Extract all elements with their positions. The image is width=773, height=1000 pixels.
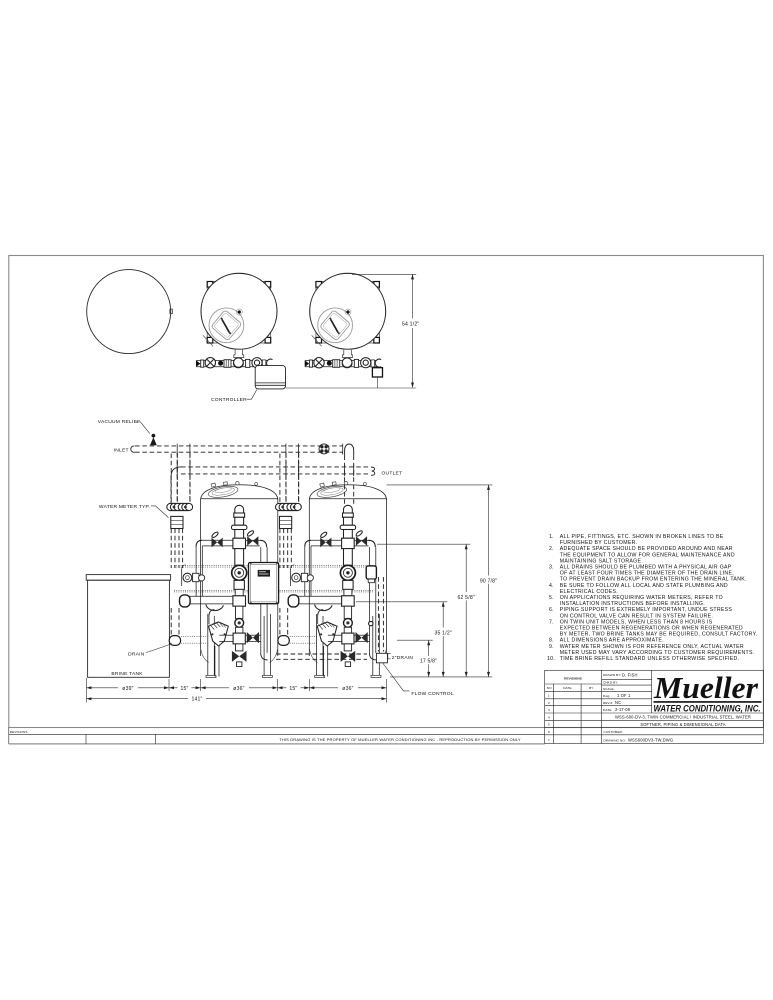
svg-text:BY METER, TWO BRINE TANKS MAY: BY METER, TWO BRINE TANKS MAY BE REQUIRE…: [560, 632, 758, 638]
svg-text:FURNISHED BY CUSTOMER.: FURNISHED BY CUSTOMER.: [560, 540, 638, 546]
svg-text:MAINTAINING SALT STORAGE.: MAINTAINING SALT STORAGE.: [560, 558, 643, 564]
svg-text:1 OF 1: 1 OF 1: [617, 693, 631, 698]
svg-text:5.: 5.: [549, 595, 554, 601]
svg-text:Mueller: Mueller: [653, 670, 759, 705]
svg-text:4.: 4.: [549, 583, 554, 589]
svg-text:NC: NC: [615, 700, 621, 705]
svg-text:8.: 8.: [549, 638, 554, 644]
svg-text:ON CONTROL VALVE CAN RESULT IN: ON CONTROL VALVE CAN RESULT IN SYSTEM FA…: [560, 613, 713, 619]
svg-text:INSTALLATION INSTRUCTIONS BEFO: INSTALLATION INSTRUCTIONS BEFORE INSTALL…: [560, 601, 705, 607]
svg-text:1: 1: [548, 694, 550, 698]
svg-text:BY: BY: [589, 686, 593, 690]
svg-text:DRAWING NO:: DRAWING NO:: [604, 738, 626, 742]
svg-text:4: 4: [548, 715, 550, 719]
svg-text:VACUUM RELIEF: VACUUM RELIEF: [98, 419, 141, 425]
svg-text:BRINE TANK: BRINE TANK: [111, 671, 143, 677]
svg-text:NO: NO: [547, 686, 552, 690]
svg-text:REV.#:: REV.#:: [603, 701, 613, 705]
svg-text:2"DRAIN: 2"DRAIN: [392, 655, 414, 661]
svg-text:DATE: DATE: [563, 686, 571, 690]
svg-text:DRAIN: DRAIN: [128, 651, 145, 657]
svg-text:BE SURE TO FOLLOW ALL LOCAL AN: BE SURE TO FOLLOW ALL LOCAL AND STATE PL…: [560, 583, 728, 589]
svg-text:15": 15": [289, 686, 297, 692]
svg-text:Dwg: Dwg: [603, 694, 610, 698]
svg-text:90 7/8": 90 7/8": [480, 578, 497, 584]
svg-text:ø36": ø36": [342, 686, 353, 692]
svg-text:THE EQUIPMENT TO ALLOW FOR GEN: THE EQUIPMENT TO ALLOW FOR GENERAL MAINT…: [560, 552, 735, 558]
svg-text:ø39": ø39": [122, 686, 133, 692]
svg-text:SCALE:: SCALE:: [603, 687, 615, 691]
svg-text:5: 5: [548, 723, 550, 727]
svg-text:1.: 1.: [549, 534, 554, 540]
svg-text:3: 3: [548, 708, 550, 712]
svg-text:141": 141": [191, 697, 202, 703]
svg-text:15": 15": [180, 686, 188, 692]
svg-text:CUSTOMER:: CUSTOMER:: [604, 730, 623, 734]
svg-text:2.: 2.: [549, 546, 554, 552]
svg-text:INLET: INLET: [114, 448, 129, 454]
svg-text:DATE: DATE: [603, 708, 611, 712]
svg-text:ON TWIN UNIT MODELS, WHEN LESS: ON TWIN UNIT MODELS, WHEN LESS THAN 8 HO…: [560, 619, 713, 625]
svg-text:OF AT LEAST FOUR TIMES THE DIA: OF AT LEAST FOUR TIMES THE DIAMETER OF T…: [560, 571, 734, 577]
svg-text:CHKD BY:: CHKD BY:: [603, 681, 618, 685]
svg-text:2-17-08: 2-17-08: [615, 707, 631, 712]
svg-text:2: 2: [548, 701, 550, 705]
svg-text:6.: 6.: [549, 607, 554, 613]
svg-text:EXPECTED BETWEEN REGENERATIONS: EXPECTED BETWEEN REGENERATIONS OR WHEN R…: [560, 626, 743, 632]
svg-text:9.: 9.: [549, 644, 554, 650]
svg-text:7.: 7.: [549, 619, 554, 625]
svg-text:TO PREVENT DRAIN BACKUP FROM E: TO PREVENT DRAIN BACKUP FROM ENTERING TH…: [560, 577, 747, 583]
svg-text:D. FISH: D. FISH: [622, 672, 638, 677]
svg-text:6: 6: [548, 730, 550, 734]
svg-text:WSS-600-DV-3, TWIN COMMERCIAL: WSS-600-DV-3, TWIN COMMERCIAL / INDUSTRI…: [615, 715, 751, 720]
svg-text:REVISIONS: REVISIONS: [564, 677, 582, 681]
svg-text:ADEQUATE SPACE SHOULD BE PROVI: ADEQUATE SPACE SHOULD BE PROVIDED AROUND…: [560, 546, 733, 552]
svg-text:REVISIONS.: REVISIONS.: [10, 730, 29, 734]
svg-text:ø36": ø36": [233, 686, 244, 692]
svg-text:ALL DRAINS SHOULD BE PLUMBED W: ALL DRAINS SHOULD BE PLUMBED WITH A PHYS…: [560, 565, 732, 571]
svg-text:WATER METER TYP.: WATER METER TYP.: [99, 504, 150, 510]
svg-text:62 5/8": 62 5/8": [458, 595, 475, 601]
svg-text:TIME BRINE REFILL STANDARD UNL: TIME BRINE REFILL STANDARD UNLESS OTHERW…: [560, 656, 740, 662]
svg-text:THIS DRAWING IS THE PROPERTY O: THIS DRAWING IS THE PROPERTY OF MUELLER …: [279, 737, 521, 742]
svg-text:WATER CONDITIONING, INC.: WATER CONDITIONING, INC.: [654, 703, 761, 713]
svg-text:DRAWN BY:: DRAWN BY:: [603, 673, 621, 677]
svg-text:FLOW CONTROL: FLOW CONTROL: [411, 691, 453, 697]
svg-text:OUTLET: OUTLET: [382, 470, 403, 476]
svg-text:METER USED MAY VARY ACCORDING: METER USED MAY VARY ACCORDING TO CUSTOME…: [560, 650, 755, 656]
svg-text:PIPING SUPPORT IS EXTREMELY IM: PIPING SUPPORT IS EXTREMELY IMPORTANT, U…: [560, 607, 733, 613]
svg-text:WSS600DV3-TW.DWG: WSS600DV3-TW.DWG: [628, 737, 673, 742]
svg-text:7: 7: [548, 738, 550, 742]
svg-text:SOFTNER, PIPING & DIMENSIONAL: SOFTNER, PIPING & DIMENSIONAL DATA: [640, 722, 725, 727]
svg-text:ON APPLICATIONS REQUIRING WATE: ON APPLICATIONS REQUIRING WATER METERS, …: [560, 595, 723, 601]
svg-text:17 5/8": 17 5/8": [420, 659, 437, 665]
svg-text:ELECTRICAL CODES.: ELECTRICAL CODES.: [560, 589, 618, 595]
svg-text:WATER METER SHOWN IS FOR REFER: WATER METER SHOWN IS FOR REFERENCE ONLY,…: [560, 644, 744, 650]
svg-text:ALL DIMENSIONS ARE APPROXIMATE: ALL DIMENSIONS ARE APPROXIMATE.: [560, 638, 664, 644]
svg-text:ALL PIPE, FITTINGS, ETC. SHOWN: ALL PIPE, FITTINGS, ETC. SHOWN IN BROKEN…: [560, 534, 724, 540]
svg-text:10.: 10.: [547, 656, 555, 662]
svg-text:35 1/2": 35 1/2": [435, 630, 452, 636]
svg-text:CONTROLLER: CONTROLLER: [211, 397, 247, 403]
svg-text:3.: 3.: [549, 565, 554, 571]
svg-text:54 1/2": 54 1/2": [402, 322, 419, 328]
